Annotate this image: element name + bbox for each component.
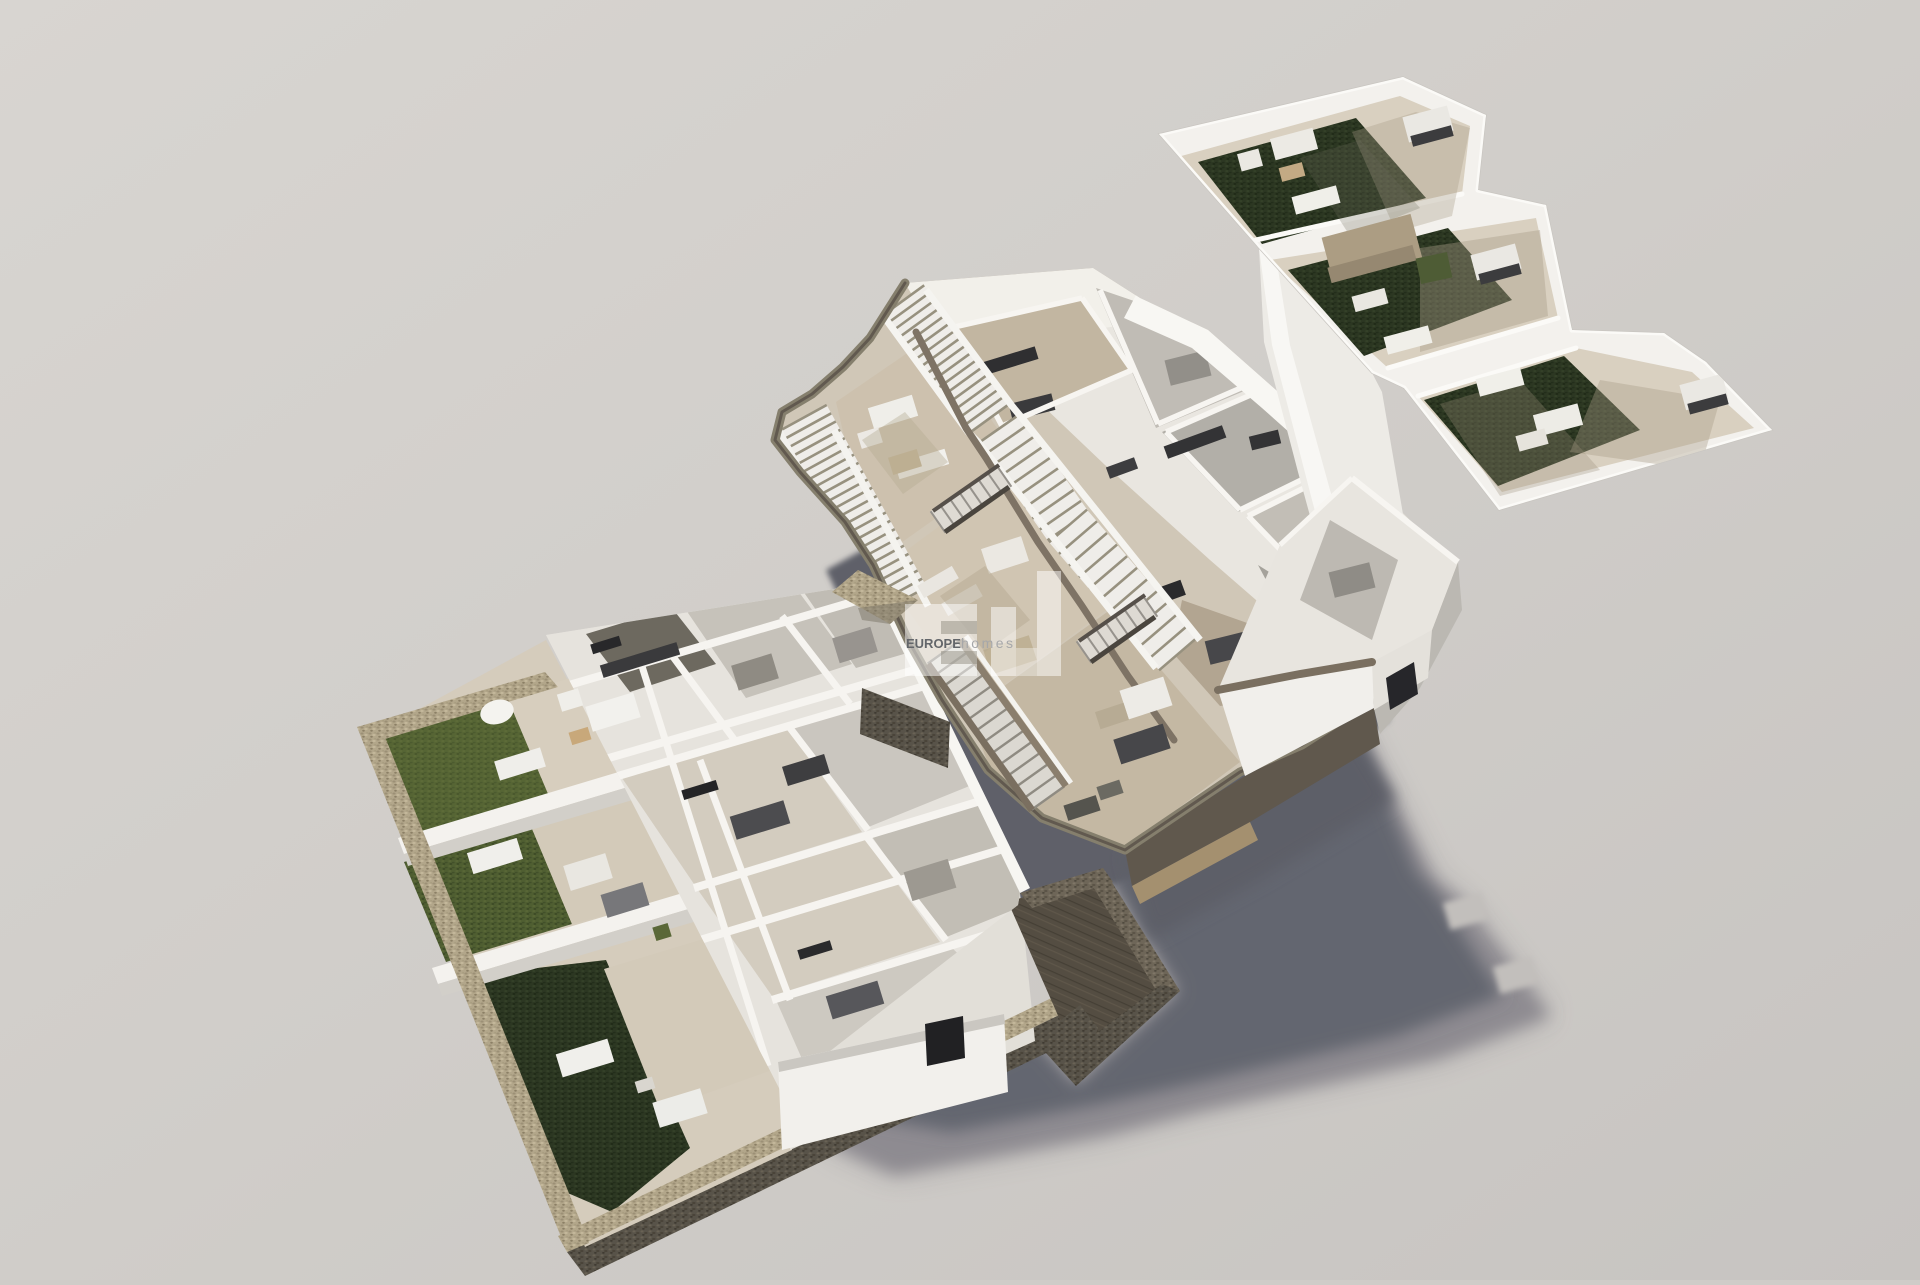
svg-text:EUROPE: EUROPE (906, 636, 961, 651)
svg-text:homes: homes (961, 635, 1016, 651)
